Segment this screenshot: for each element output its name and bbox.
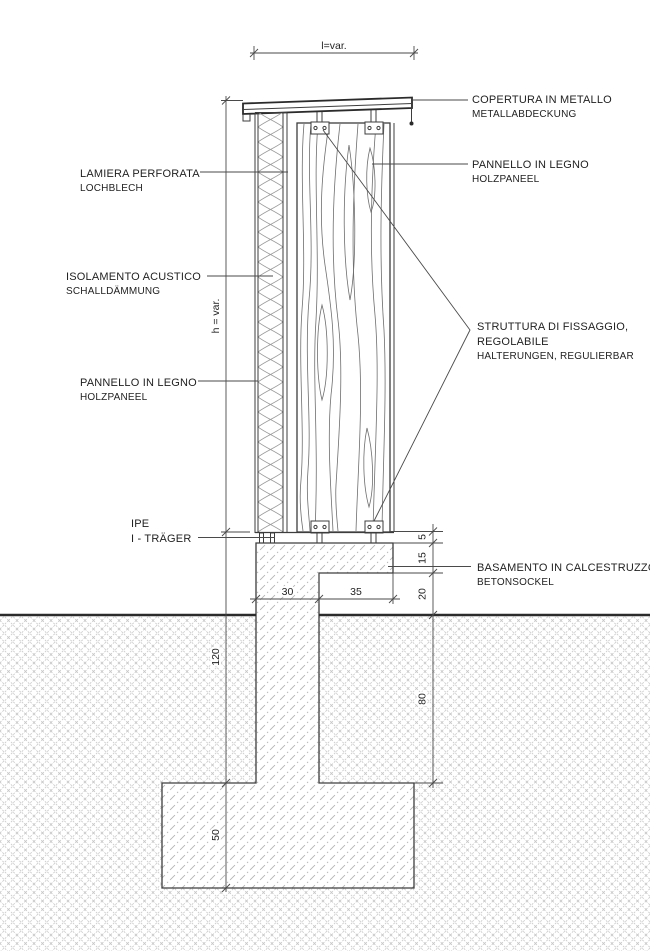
dim-width-top-text: l=var.	[321, 40, 346, 52]
label-ipe: IPE I - TRÄGER	[131, 518, 191, 545]
label-struttura-de: HALTERUNGEN, REGULIERBAR	[477, 351, 634, 362]
label-isolamento: ISOLAMENTO ACUSTICO SCHALLDÄMMUNG	[66, 271, 201, 297]
ipe-base	[255, 533, 394, 544]
wood-grain	[300, 124, 385, 531]
acoustic-insulation-hatch	[258, 113, 283, 534]
label-pannello-left-de: HOLZPANEEL	[80, 392, 148, 403]
wall-section-drawing: l=var. h = var. 120 50 5	[0, 0, 650, 951]
dim-80-text: 80	[417, 693, 429, 705]
bracket-bottom-right	[365, 521, 383, 533]
bracket-top-left	[311, 122, 329, 134]
dim-5-text: 5	[417, 534, 429, 540]
label-isolamento-it: ISOLAMENTO ACUSTICO	[66, 271, 201, 283]
dim-50-text: 50	[210, 829, 222, 841]
label-isolamento-de: SCHALLDÄMMUNG	[66, 285, 160, 297]
label-lamiera-it: LAMIERA PERFORATA	[80, 168, 200, 180]
coping-drip-end-dot	[410, 122, 414, 126]
leader-lines	[198, 100, 471, 567]
label-copertura: COPERTURA IN METALLO METALLABDECKUNG	[472, 94, 612, 120]
label-copertura-de: METALLABDECKUNG	[472, 109, 577, 120]
label-struttura: STRUTTURA DI FISSAGGIO, REGOLABILE HALTE…	[477, 321, 634, 362]
dim-20-text: 20	[417, 588, 429, 600]
label-copertura-it: COPERTURA IN METALLO	[472, 94, 612, 106]
bracket-bottom-left	[311, 521, 329, 533]
label-basamento-it: BASAMENTO IN CALCESTRUZZO	[477, 562, 650, 574]
wood-panel	[297, 123, 394, 532]
dim-top-width: l=var.	[250, 40, 418, 60]
label-struttura-it2: REGOLABILE	[477, 336, 549, 348]
dim-35-text: 35	[350, 586, 362, 598]
label-basamento-de: BETONSOCKEL	[477, 577, 554, 588]
label-pannello-left-it: PANNELLO IN LEGNO	[80, 377, 197, 389]
technical-drawing-page: l=var. h = var. 120 50 5	[0, 0, 650, 951]
label-ipe-de: I - TRÄGER	[131, 533, 191, 545]
label-ipe-it: IPE	[131, 518, 149, 530]
dim-15-text: 15	[417, 552, 429, 564]
dim-120-text: 120	[210, 648, 222, 666]
dim-height-text: h = var.	[210, 299, 222, 334]
dim-30-text: 30	[282, 586, 294, 598]
insulation-column	[255, 113, 287, 534]
labels: COPERTURA IN METALLO METALLABDECKUNG PAN…	[66, 94, 650, 588]
label-lamiera: LAMIERA PERFORATA LOCHBLECH	[80, 168, 200, 194]
label-pannello-right-de: HOLZPANEEL	[472, 174, 540, 185]
label-pannello-left: PANNELLO IN LEGNO HOLZPANEEL	[80, 377, 197, 403]
label-lamiera-de: LOCHBLECH	[80, 183, 143, 194]
label-pannello-right-it: PANNELLO IN LEGNO	[472, 159, 589, 171]
coping-left-drip	[243, 114, 250, 121]
label-basamento: BASAMENTO IN CALCESTRUZZO BETONSOCKEL	[477, 562, 650, 588]
bracket-top-right	[365, 122, 383, 134]
label-struttura-it1: STRUTTURA DI FISSAGGIO,	[477, 321, 628, 333]
label-pannello-right: PANNELLO IN LEGNO HOLZPANEEL	[472, 159, 589, 185]
